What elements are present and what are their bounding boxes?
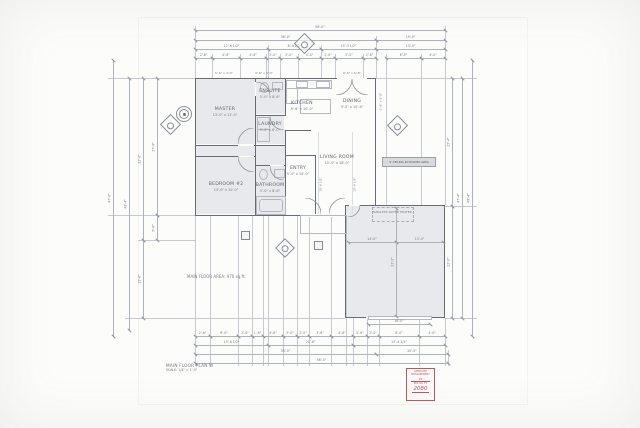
room-label: BATHROOM5'-0" x 8'-6" <box>256 183 285 193</box>
annotation-text: 4'-6" x 4'-0" <box>255 72 273 75</box>
dimension-label: 20'-0" <box>407 350 417 353</box>
dimension-line <box>419 336 445 337</box>
dimension-tick <box>141 238 145 242</box>
dimension-tick <box>333 56 337 60</box>
dimension-tick <box>193 343 197 347</box>
fixture <box>296 81 308 88</box>
dimension-tick <box>374 38 378 42</box>
annotation-text: 5'-6" x 4'-0" <box>215 72 233 75</box>
dimension-label: 2'-6" <box>356 332 364 335</box>
room-shading <box>346 206 444 317</box>
dimension-label: 3'-6" <box>316 332 324 335</box>
dimension-label: 21'-2" <box>391 257 394 267</box>
dimension-label: 16'-0" <box>394 320 404 323</box>
dimension-line <box>143 78 144 240</box>
dimension-line <box>353 345 445 346</box>
dimension-line <box>368 324 430 325</box>
stamp-value: 2080 <box>412 386 429 393</box>
extension-line <box>252 216 253 366</box>
dimension-label: 47'-0" <box>108 193 111 203</box>
floor-plan-sheet: 56'-0"36'-0"19'-0"12'-6 1/2"8'-9 1/2"15'… <box>0 0 640 428</box>
dimension-label: 3'-0" <box>285 54 293 57</box>
wall-segment <box>195 78 196 216</box>
extension-line <box>195 26 196 78</box>
room-label: ENSUITE5'-0" x 8'-6" <box>259 89 280 99</box>
dimension-label: 15'-3 1/2" <box>341 45 357 48</box>
dimension-label: 2'-6" <box>366 54 374 57</box>
section-marker-icon <box>293 32 314 53</box>
dimension-line <box>210 336 238 337</box>
room-size: 9'-0" x 10'-6" <box>341 105 363 109</box>
section-marker-icon <box>275 238 295 258</box>
dimension-tick <box>193 47 197 51</box>
dimension-line <box>396 208 397 316</box>
dimension-tick <box>446 361 450 365</box>
dimension-line <box>321 49 376 50</box>
approval-stamp: APPROVED MEASUREMENT 26 SEA SQ. FT. 2080 <box>406 368 435 401</box>
fixture <box>316 81 330 88</box>
dimension-line <box>263 336 283 337</box>
dimension-label: 22'-0" <box>447 257 450 267</box>
room-size: 5'-0" x 8'-6" <box>256 189 285 193</box>
wall-segment <box>255 78 256 215</box>
extension-line <box>419 318 420 366</box>
dimension-line <box>472 60 473 336</box>
room-label: MASTER13'-0" x 12'-0" <box>213 107 238 117</box>
dimension-label: 13'-4 1/2" <box>391 341 407 344</box>
dimension-line <box>462 78 463 318</box>
room-name: BATHROOM <box>256 183 285 189</box>
dimension-label: 6'-0" <box>400 54 408 57</box>
dimension-line <box>129 78 130 330</box>
dimension-line <box>331 336 353 337</box>
dimension-line <box>452 78 453 206</box>
extension-line <box>445 318 446 366</box>
dimension-label: 4'-6" <box>338 332 346 335</box>
room-size: 13'-0" x 10'-0" <box>209 188 244 192</box>
dimension-line <box>157 215 158 240</box>
dimension-tick <box>296 56 300 60</box>
dimension-label: 21'-6" <box>306 341 316 344</box>
extension-line <box>386 54 387 205</box>
room-size: 5'-0" x 8'-6" <box>259 95 280 99</box>
extension-line <box>445 26 446 205</box>
door-swing <box>238 156 254 172</box>
extension-line <box>331 216 332 366</box>
dimension-label: 13'-6 1/2" <box>224 341 240 344</box>
door-opening <box>284 116 286 130</box>
ceiling-height-note-text: 9' CEILING IN SHADED AREA <box>389 160 429 164</box>
dimension-label: 4'-0" <box>429 54 437 57</box>
dimension-tick <box>155 213 159 217</box>
dimension-tick <box>278 56 282 60</box>
door-opening <box>238 144 254 146</box>
dimension-label: 2'-0" <box>324 54 332 57</box>
room-label: ENTRY5'-0" x 14'-0" <box>287 166 309 176</box>
dimension-tick <box>450 204 454 208</box>
dimension-label: 3'-0" <box>286 332 294 335</box>
dimension-label: 15'-6" <box>138 274 141 284</box>
annotation-text: 10'-6 1/2" <box>354 177 357 192</box>
dimension-tick <box>443 343 447 347</box>
wall-segment <box>444 205 445 318</box>
door-swing <box>329 198 345 214</box>
dimension-tick <box>155 76 159 80</box>
room-name: LAUNDRY <box>258 122 282 128</box>
title-block: MAIN FLOOR PLAN W SCALE: 1/4" = 1'-0" <box>166 363 213 373</box>
room-label: LAUNDRY5'-0" x 6'-0" <box>258 122 282 132</box>
dimension-label: 4'-6" <box>269 332 277 335</box>
dimension-tick <box>374 352 378 356</box>
dimension-tick <box>351 343 355 347</box>
dimension-tick <box>470 334 474 338</box>
dimension-label: 56'-0" <box>315 26 325 29</box>
dimension-label: 4'-6" <box>249 54 257 57</box>
room-name: KITCHEN <box>291 101 313 107</box>
room-name: BEDROOM #2 <box>209 182 244 188</box>
dimension-line <box>396 242 443 243</box>
wall-segment <box>375 78 376 206</box>
room-label: KITCHEN9'-6" x 10'-0" <box>291 101 313 111</box>
dimension-tick <box>351 334 355 338</box>
dimension-tick <box>193 352 197 356</box>
room-size: 5'-0" x 6'-0" <box>258 128 282 132</box>
wall-segment <box>285 130 311 131</box>
marker-circle-icon <box>299 39 309 49</box>
dimension-tick <box>319 47 323 51</box>
extension-line <box>138 240 195 241</box>
room-name: ENSUITE <box>259 89 280 95</box>
extension-line <box>125 318 345 319</box>
dimension-line <box>195 30 445 31</box>
dimension-label: 49'-4" <box>467 193 470 203</box>
dimension-tick <box>266 343 270 347</box>
wall-segment <box>255 145 285 146</box>
dimension-label: 4'-6" <box>222 54 230 57</box>
door-swing <box>270 166 284 180</box>
room-size: 5'-0" x 14'-0" <box>287 172 309 176</box>
dimension-line <box>376 49 445 50</box>
dimension-line <box>280 58 298 59</box>
scanned-drawing-page: 56'-0"36'-0"19'-0"12'-6 1/2"8'-9 1/2"15'… <box>0 0 640 428</box>
marker-circle-icon <box>165 120 175 130</box>
dimension-tick <box>127 76 131 80</box>
room-name: LIVING ROOM <box>320 155 354 161</box>
drawing-scale: SCALE: 1/4" = 1'-0" <box>166 368 213 372</box>
dimension-label: 2'-0" <box>369 332 377 335</box>
dimension-label: 2'-0" <box>299 332 307 335</box>
room-name: MASTER <box>213 107 238 113</box>
room-shading <box>196 146 255 156</box>
dimension-line <box>113 60 114 336</box>
dimension-tick <box>111 58 115 62</box>
room-name: ENTRY <box>287 166 309 172</box>
room-label: DINING9'-0" x 10'-6" <box>341 99 363 109</box>
dimension-line <box>376 354 448 355</box>
dimension-line <box>157 78 158 215</box>
door-swing <box>348 205 360 217</box>
dimension-line <box>386 58 421 59</box>
dimension-line <box>143 240 144 318</box>
dimension-tick <box>236 334 240 338</box>
dimension-label: 36'-0" <box>281 350 291 353</box>
ceiling-height-note: 9' CEILING IN SHADED AREA <box>382 157 436 167</box>
dimension-line <box>379 336 419 337</box>
dimension-label: 43'-4" <box>124 199 127 209</box>
dimension-tick <box>450 76 454 80</box>
dimension-line <box>452 206 453 318</box>
dimension-label: 36'-0" <box>281 36 291 39</box>
room-name: DINING <box>341 99 363 105</box>
door-swing <box>336 79 352 95</box>
dimension-line <box>348 242 396 243</box>
dimension-label: 19'-0" <box>406 36 416 39</box>
dimension-label: 2'-6" <box>241 332 249 335</box>
dimension-tick <box>361 56 365 60</box>
dimension-tick <box>443 28 447 32</box>
dimension-line <box>376 40 445 41</box>
dimension-tick <box>329 334 333 338</box>
dimension-tick <box>377 334 381 338</box>
dimension-label: 2'-6" <box>199 332 207 335</box>
dimension-label: 4'-0" <box>428 332 436 335</box>
fixture <box>259 169 268 180</box>
dimension-tick <box>450 316 454 320</box>
dimension-tick <box>428 322 432 326</box>
dimension-tick <box>193 56 197 60</box>
wall-segment <box>285 155 315 156</box>
dimension-tick <box>319 56 323 60</box>
dimension-tick <box>193 28 197 32</box>
section-marker-icon <box>386 114 407 135</box>
extension-line <box>379 318 380 366</box>
floor-area-note: MAIN FLOOR AREA: 970 sq.ft. <box>187 274 246 279</box>
dimension-label: 5'-0" <box>152 224 155 232</box>
dimension-label: 13'-0" <box>415 238 425 241</box>
ceiling-fixture-icon <box>176 106 192 122</box>
room-label: BEDROOM #213'-0" x 10'-0" <box>209 182 244 192</box>
dimension-line <box>195 49 268 50</box>
dimension-tick <box>193 334 197 338</box>
annotation-text: 9'-0" x 6'-8" <box>343 72 361 75</box>
dimension-tick <box>443 334 447 338</box>
annotation-text: 10'-6 1/2" <box>320 177 323 192</box>
dimension-label: 5'-0" <box>345 54 353 57</box>
extension-line <box>210 216 211 366</box>
dimension-tick <box>443 56 447 60</box>
dimension-line <box>212 58 240 59</box>
dimension-tick <box>281 334 285 338</box>
room-label: LIVING ROOM15'-0" x 18'-0" <box>320 155 354 165</box>
extension-line <box>108 215 195 216</box>
dimension-line <box>195 40 376 41</box>
dimension-tick <box>460 316 464 320</box>
dimension-tick <box>460 76 464 80</box>
fixture <box>300 215 347 234</box>
dimension-tick <box>443 47 447 51</box>
dimension-line <box>195 354 376 355</box>
room-size: 13'-0" x 12'-0" <box>213 113 238 117</box>
dimension-tick <box>374 47 378 51</box>
dimension-line <box>268 49 321 50</box>
dimension-line <box>298 58 321 59</box>
dimension-label: 56'-0" <box>317 359 327 362</box>
dimension-tick <box>208 334 212 338</box>
dimension-tick <box>238 56 242 60</box>
room-shading <box>256 146 285 165</box>
room-size: 15'-0" x 18'-0" <box>320 161 354 165</box>
dimension-line <box>335 58 363 59</box>
door-swing <box>352 79 368 95</box>
fixture-dot-icon <box>183 113 186 116</box>
dimension-label: 13'-0" <box>406 45 416 48</box>
dimension-line <box>195 363 448 364</box>
dimension-line <box>240 58 266 59</box>
dimension-label: 4'-0" <box>306 54 314 57</box>
extension-line <box>421 54 422 205</box>
extension-line <box>353 318 354 366</box>
dimension-label: 32'-0" <box>138 154 141 164</box>
detector-icon <box>241 231 250 240</box>
dimension-label: 2'-6" <box>200 54 208 57</box>
dimension-tick <box>193 38 197 42</box>
dimension-tick <box>141 316 145 320</box>
dimension-tick <box>261 334 265 338</box>
dimension-tick <box>155 238 159 242</box>
dimension-label: 6'-0" <box>220 332 228 335</box>
dimension-label: 27'-0" <box>152 142 155 152</box>
fixture <box>259 199 283 212</box>
dimension-tick <box>419 56 423 60</box>
dimension-tick <box>443 38 447 42</box>
interior-line <box>352 132 353 214</box>
dimension-line <box>309 336 331 337</box>
dimension-line <box>195 345 268 346</box>
door-swing <box>305 198 321 214</box>
dimension-line <box>268 345 353 346</box>
door-swing <box>238 128 254 144</box>
dimension-tick <box>470 58 474 62</box>
detector-icon <box>314 241 323 250</box>
dimension-tick <box>127 328 131 332</box>
dimension-tick <box>307 334 311 338</box>
dimension-label: 25'-4" <box>447 137 450 147</box>
dimension-tick <box>210 56 214 60</box>
extension-line <box>263 216 264 366</box>
dimension-label: 47'-4" <box>457 193 460 203</box>
dimension-tick <box>446 352 450 356</box>
marker-circle-icon <box>280 244 290 254</box>
dimension-tick <box>111 334 115 338</box>
dimension-tick <box>384 56 388 60</box>
floor-plan-drawing: 56'-0"36'-0"19'-0"12'-6 1/2"8'-9 1/2"15'… <box>0 0 640 428</box>
dimension-label: 14'-0" <box>367 238 377 241</box>
annotation-text: 2'-8" x 6'-8" <box>380 93 383 111</box>
marker-circle-icon <box>392 121 402 131</box>
dimension-tick <box>374 56 378 60</box>
dimension-label: 8'-0" <box>395 332 403 335</box>
extension-line <box>108 78 195 79</box>
dimension-tick <box>141 76 145 80</box>
extension-line <box>297 216 298 366</box>
room-size: 9'-6" x 10'-0" <box>291 107 313 111</box>
stamp-line-1: APPROVED MEASUREMENT <box>407 371 434 377</box>
dimension-line <box>421 58 445 59</box>
dimension-label: 2'-0" <box>269 54 277 57</box>
dimension-tick <box>266 47 270 51</box>
dimension-label: 12'-6 1/2" <box>224 45 240 48</box>
dimension-tick <box>417 334 421 338</box>
annotation-text: TANKLESS WATER HEATER <box>372 211 411 214</box>
